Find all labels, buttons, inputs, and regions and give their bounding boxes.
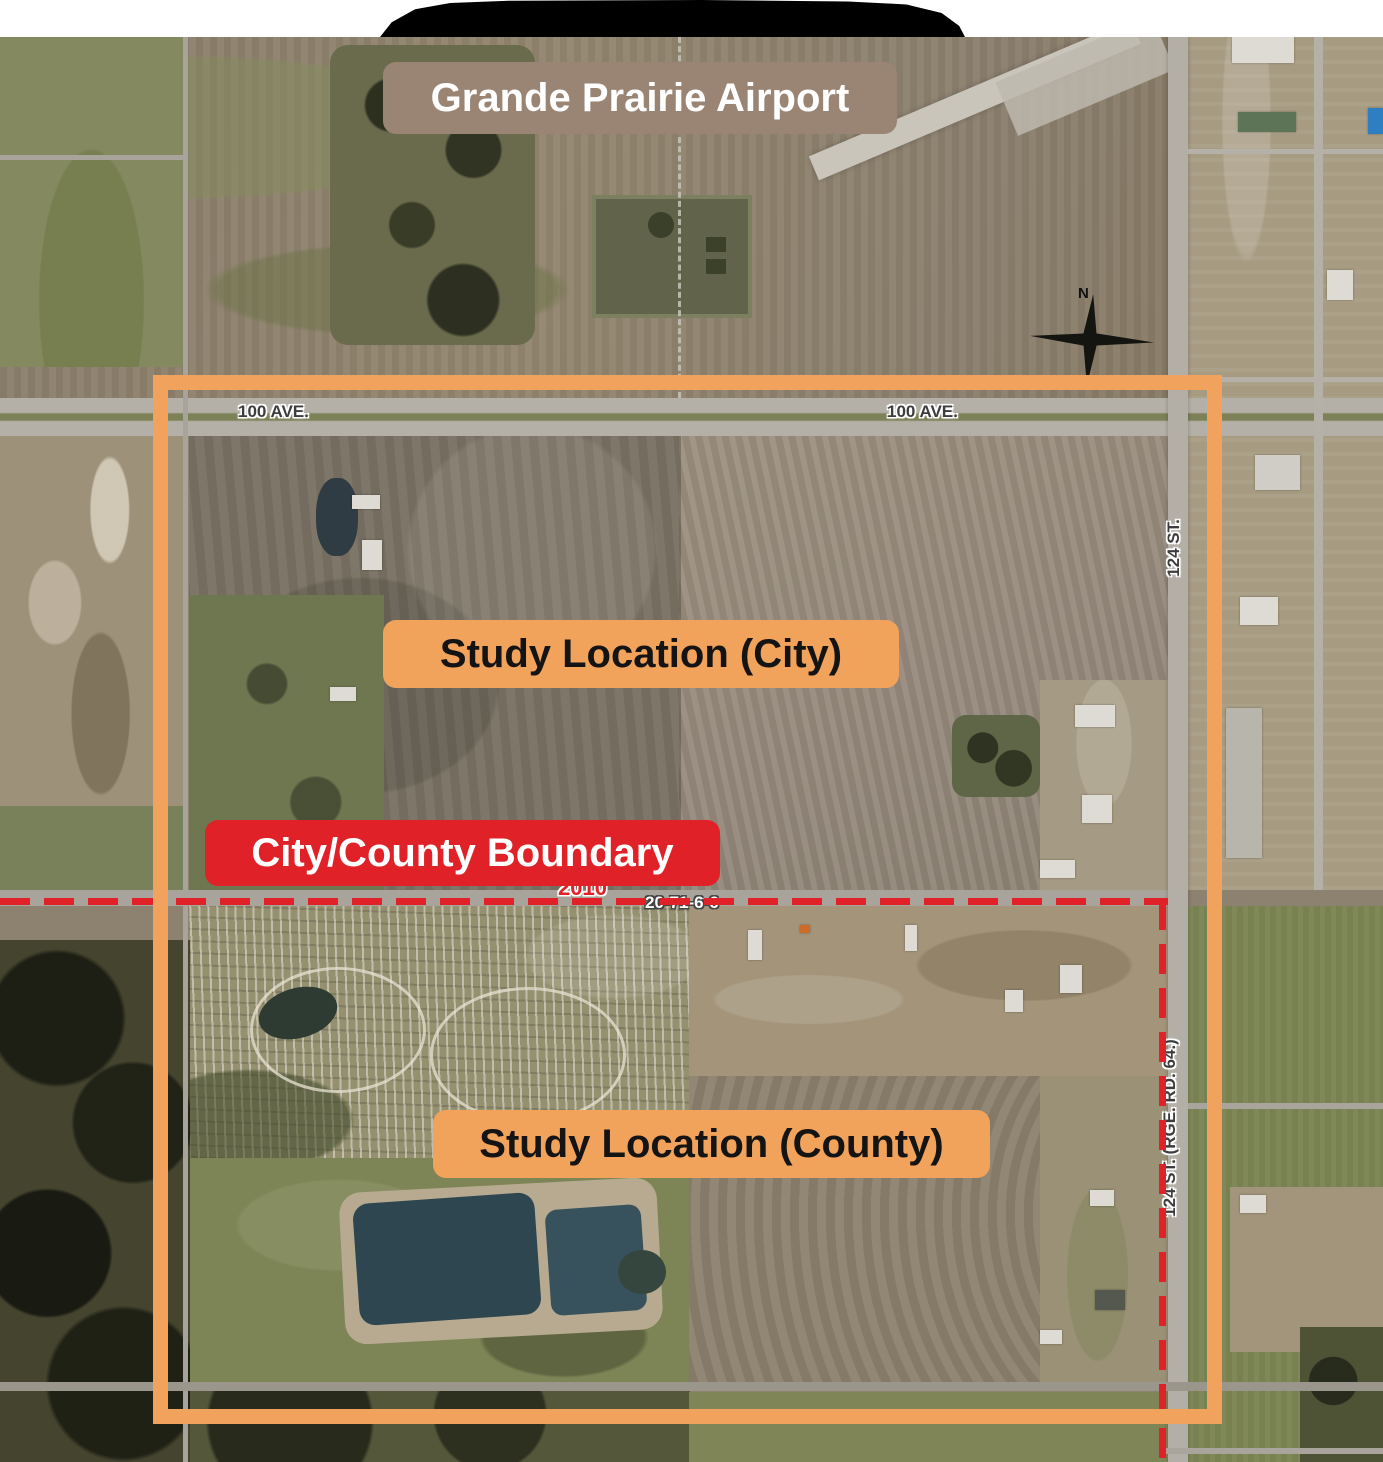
north-label: N (1078, 285, 1089, 302)
label-grande-prairie-airport: Grande Prairie Airport (383, 62, 897, 134)
label-city-county-boundary: City/County Boundary (205, 820, 720, 886)
building (1226, 708, 1262, 858)
building (1327, 270, 1353, 300)
road-industrial-cross (1188, 149, 1383, 154)
figure-study-location-map: N 100 AVE. 100 AVE. 124 ST. 124 ST. (RGE… (0, 0, 1383, 1462)
road-south-east (1160, 1448, 1383, 1454)
airport-apron-square (592, 195, 752, 318)
compass-star-icon (1018, 255, 1163, 390)
trees-southeast (1300, 1327, 1383, 1462)
apron-pad (706, 237, 726, 252)
label-study-location-county: Study Location (County) (433, 1110, 990, 1178)
aerial-map: N 100 AVE. 100 AVE. 124 ST. 124 ST. (RGE… (0, 37, 1383, 1462)
road-west-cross (0, 155, 183, 160)
road-industrial-east (1314, 37, 1323, 890)
apron-pad (648, 212, 674, 238)
top-banner-remnant (380, 0, 965, 37)
building (1240, 1195, 1266, 1213)
study-area-outline (153, 375, 1222, 1424)
building (1238, 112, 1296, 132)
building (1232, 37, 1294, 63)
building (1255, 455, 1300, 490)
field-green-northwest (0, 37, 183, 367)
building (1368, 108, 1383, 134)
apron-pad (706, 259, 726, 274)
north-arrow: N (1018, 255, 1163, 390)
label-study-location-city: Study Location (City) (383, 620, 899, 688)
building (1240, 597, 1278, 625)
